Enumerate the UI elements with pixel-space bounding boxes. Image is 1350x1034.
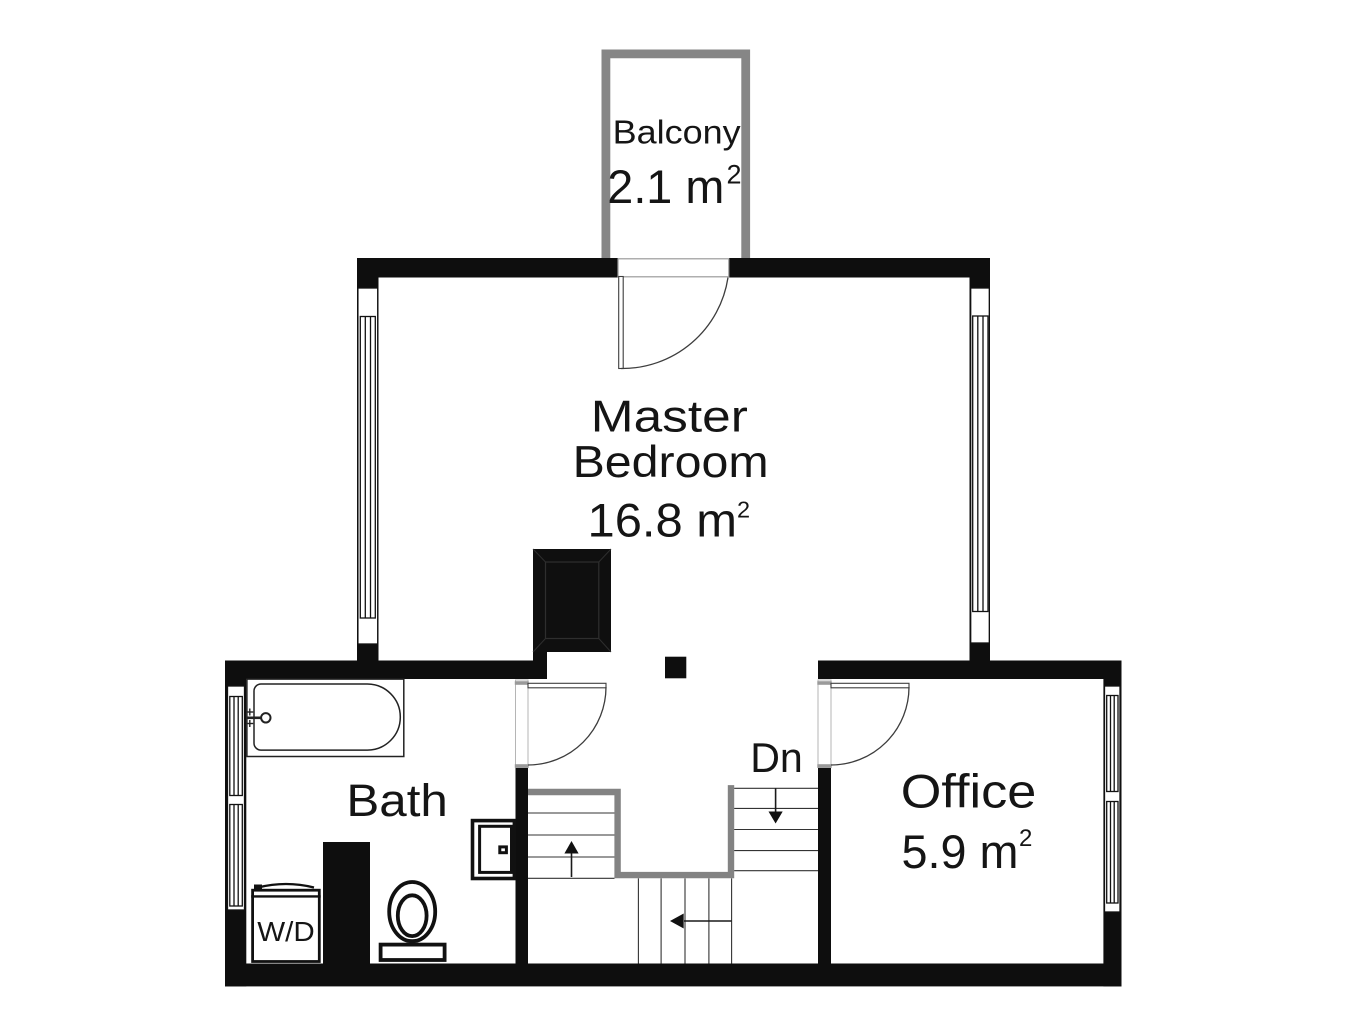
- svg-text:Bedroom: Bedroom: [573, 438, 769, 487]
- svg-text:16.8 m: 16.8 m: [588, 494, 738, 547]
- svg-text:2: 2: [727, 160, 742, 190]
- svg-text:5.9 m: 5.9 m: [902, 825, 1019, 878]
- svg-text:Master: Master: [591, 393, 748, 442]
- svg-text:Office: Office: [901, 766, 1037, 819]
- svg-text:Bath: Bath: [346, 775, 448, 826]
- svg-text:2: 2: [737, 497, 750, 523]
- svg-text:2: 2: [1019, 825, 1032, 852]
- svg-text:W/D: W/D: [257, 916, 315, 947]
- svg-text:Dn: Dn: [750, 734, 803, 781]
- svg-text:2.1 m: 2.1 m: [607, 160, 724, 213]
- svg-text:Balcony: Balcony: [613, 115, 741, 152]
